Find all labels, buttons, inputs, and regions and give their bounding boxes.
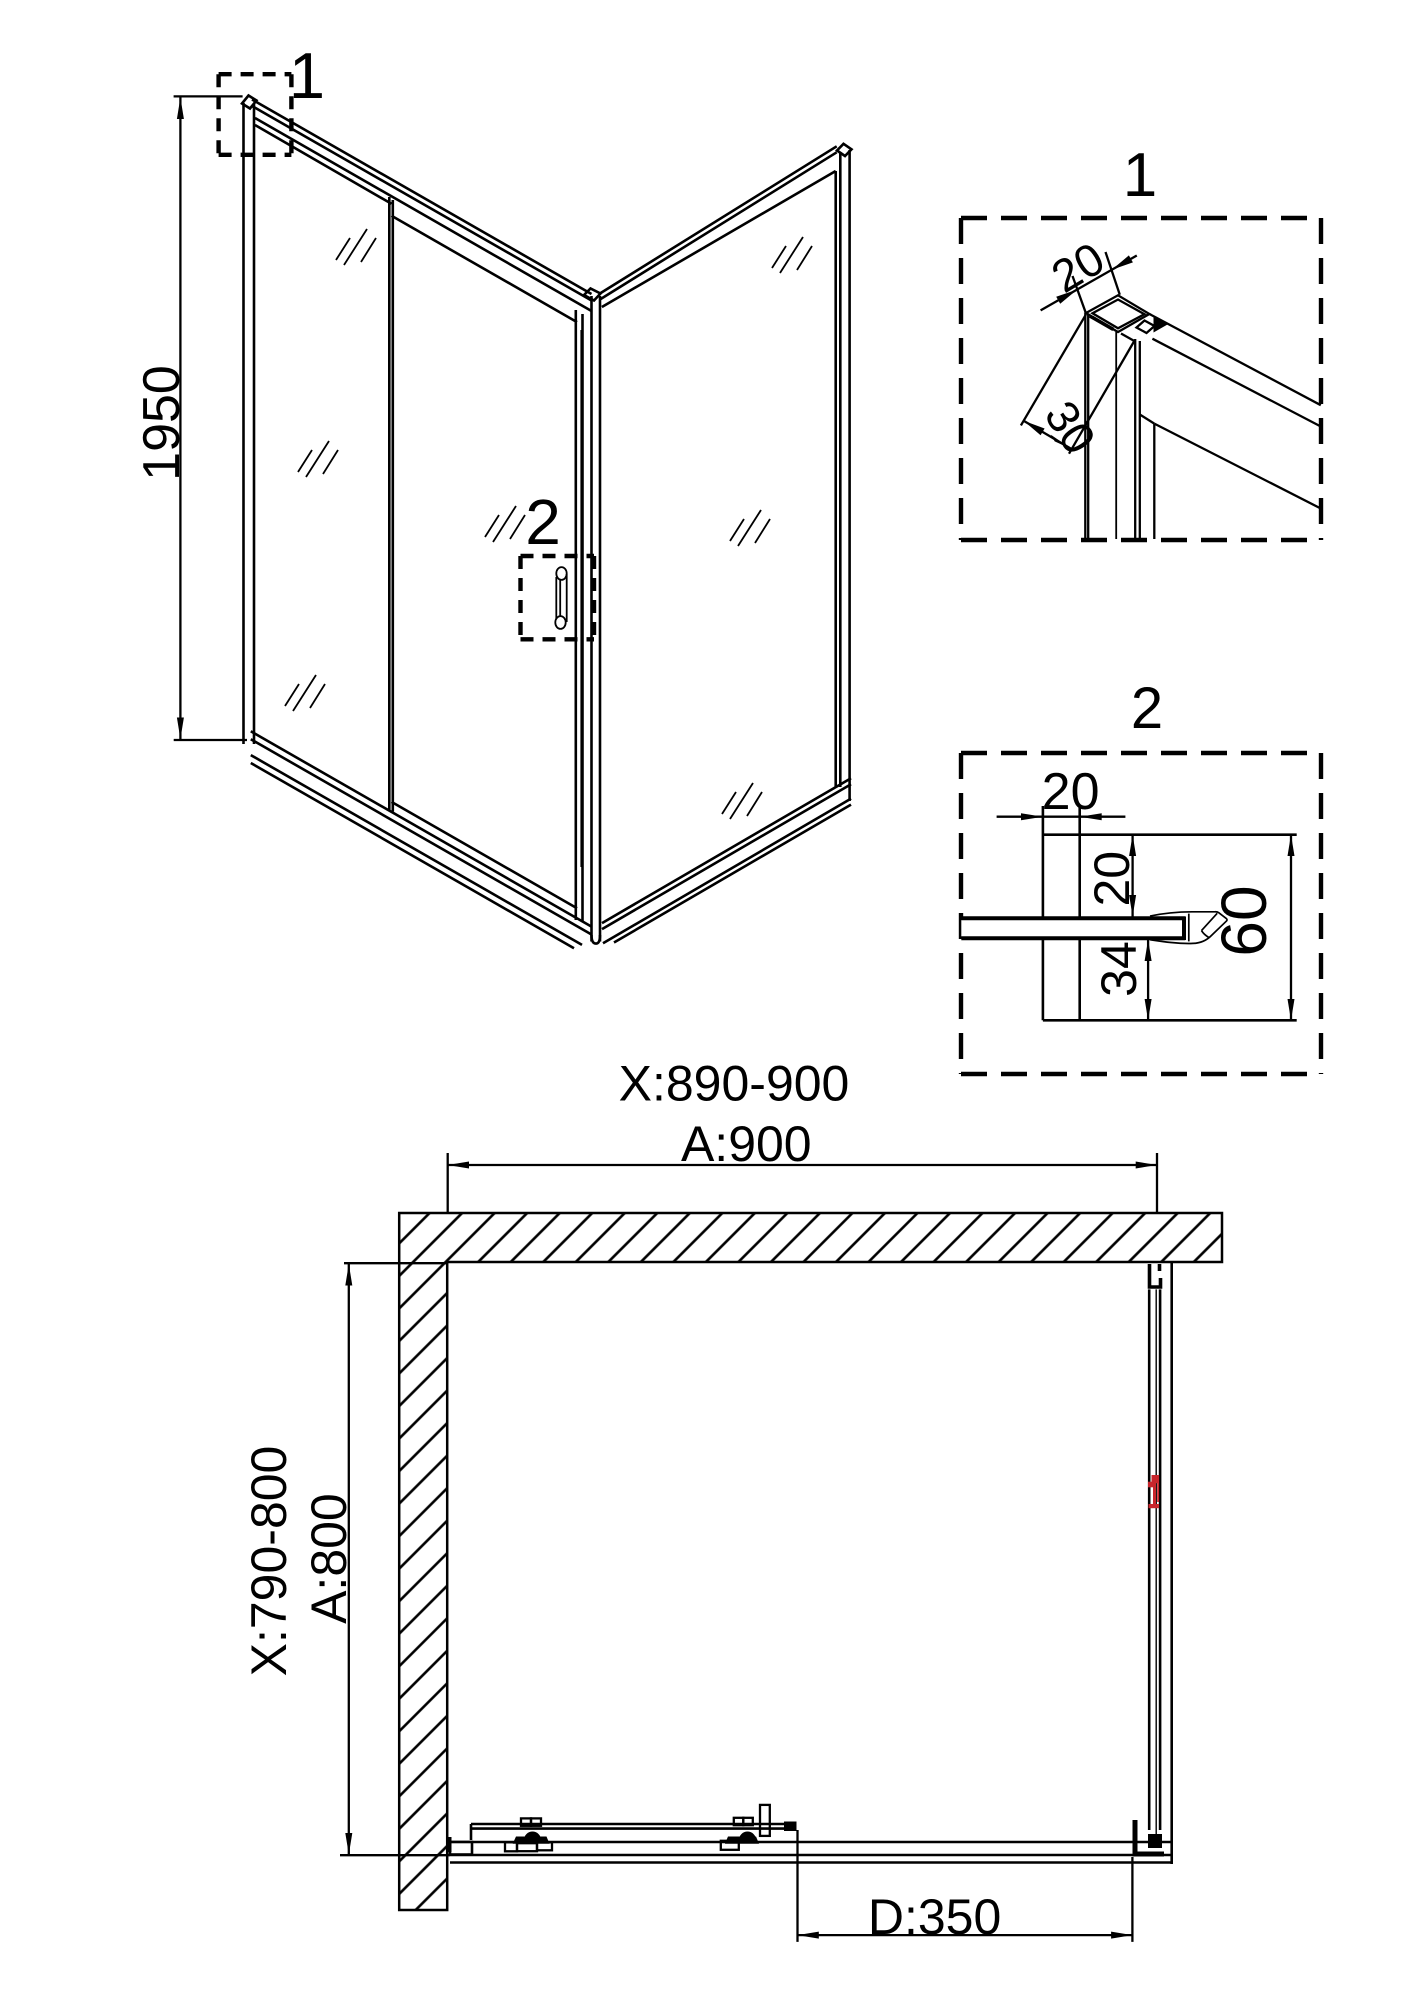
svg-text:1: 1 — [289, 39, 325, 112]
svg-text:1: 1 — [1123, 141, 1157, 210]
svg-text:D:350: D:350 — [868, 1889, 1001, 1945]
svg-text:X:890-900: X:890-900 — [619, 1056, 850, 1112]
svg-text:20: 20 — [1084, 851, 1140, 907]
svg-text:60: 60 — [1208, 885, 1280, 956]
svg-text:34: 34 — [1091, 941, 1147, 997]
svg-text:2: 2 — [1131, 676, 1163, 741]
svg-text:X:790-800: X:790-800 — [241, 1446, 297, 1677]
svg-text:20: 20 — [1042, 763, 1100, 821]
svg-text:1950: 1950 — [133, 365, 191, 481]
svg-text:2: 2 — [525, 486, 561, 558]
svg-text:A:900: A:900 — [681, 1116, 812, 1172]
